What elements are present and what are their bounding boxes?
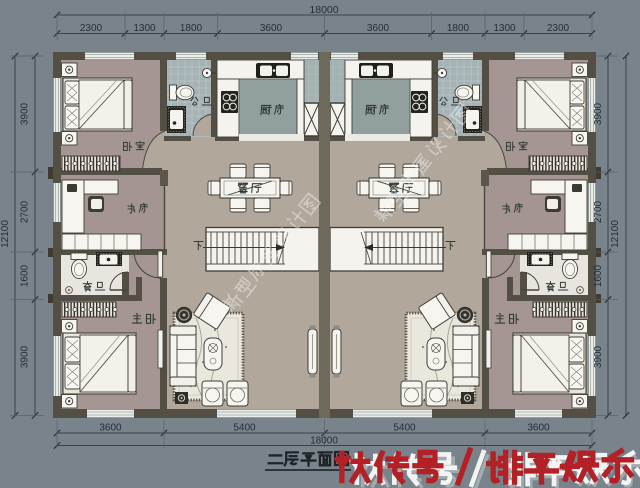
svg-text:1800: 1800 — [180, 23, 203, 34]
svg-text:3900: 3900 — [593, 345, 604, 368]
svg-text:3900: 3900 — [20, 102, 31, 125]
svg-text:2700: 2700 — [593, 200, 604, 223]
svg-text:18000: 18000 — [310, 436, 338, 447]
svg-text:3900: 3900 — [20, 345, 31, 368]
svg-text:3600: 3600 — [527, 423, 550, 434]
svg-text:12100: 12100 — [0, 220, 11, 248]
svg-text:3600: 3600 — [260, 23, 283, 34]
svg-text:5400: 5400 — [233, 423, 256, 434]
svg-text:1300: 1300 — [493, 23, 516, 34]
svg-text:3600: 3600 — [99, 423, 122, 434]
svg-text:3900: 3900 — [593, 102, 604, 125]
svg-text:1300: 1300 — [133, 23, 156, 34]
svg-text:1600: 1600 — [593, 264, 604, 287]
svg-text:1800: 1800 — [447, 23, 470, 34]
svg-text:12100: 12100 — [610, 220, 621, 248]
svg-text:2700: 2700 — [20, 200, 31, 223]
svg-text:1600: 1600 — [20, 264, 31, 287]
svg-text:5400: 5400 — [393, 423, 416, 434]
svg-text:18000: 18000 — [309, 4, 338, 16]
svg-text:3600: 3600 — [367, 23, 390, 34]
svg-text:2300: 2300 — [80, 23, 103, 34]
svg-text:2300: 2300 — [547, 23, 570, 34]
